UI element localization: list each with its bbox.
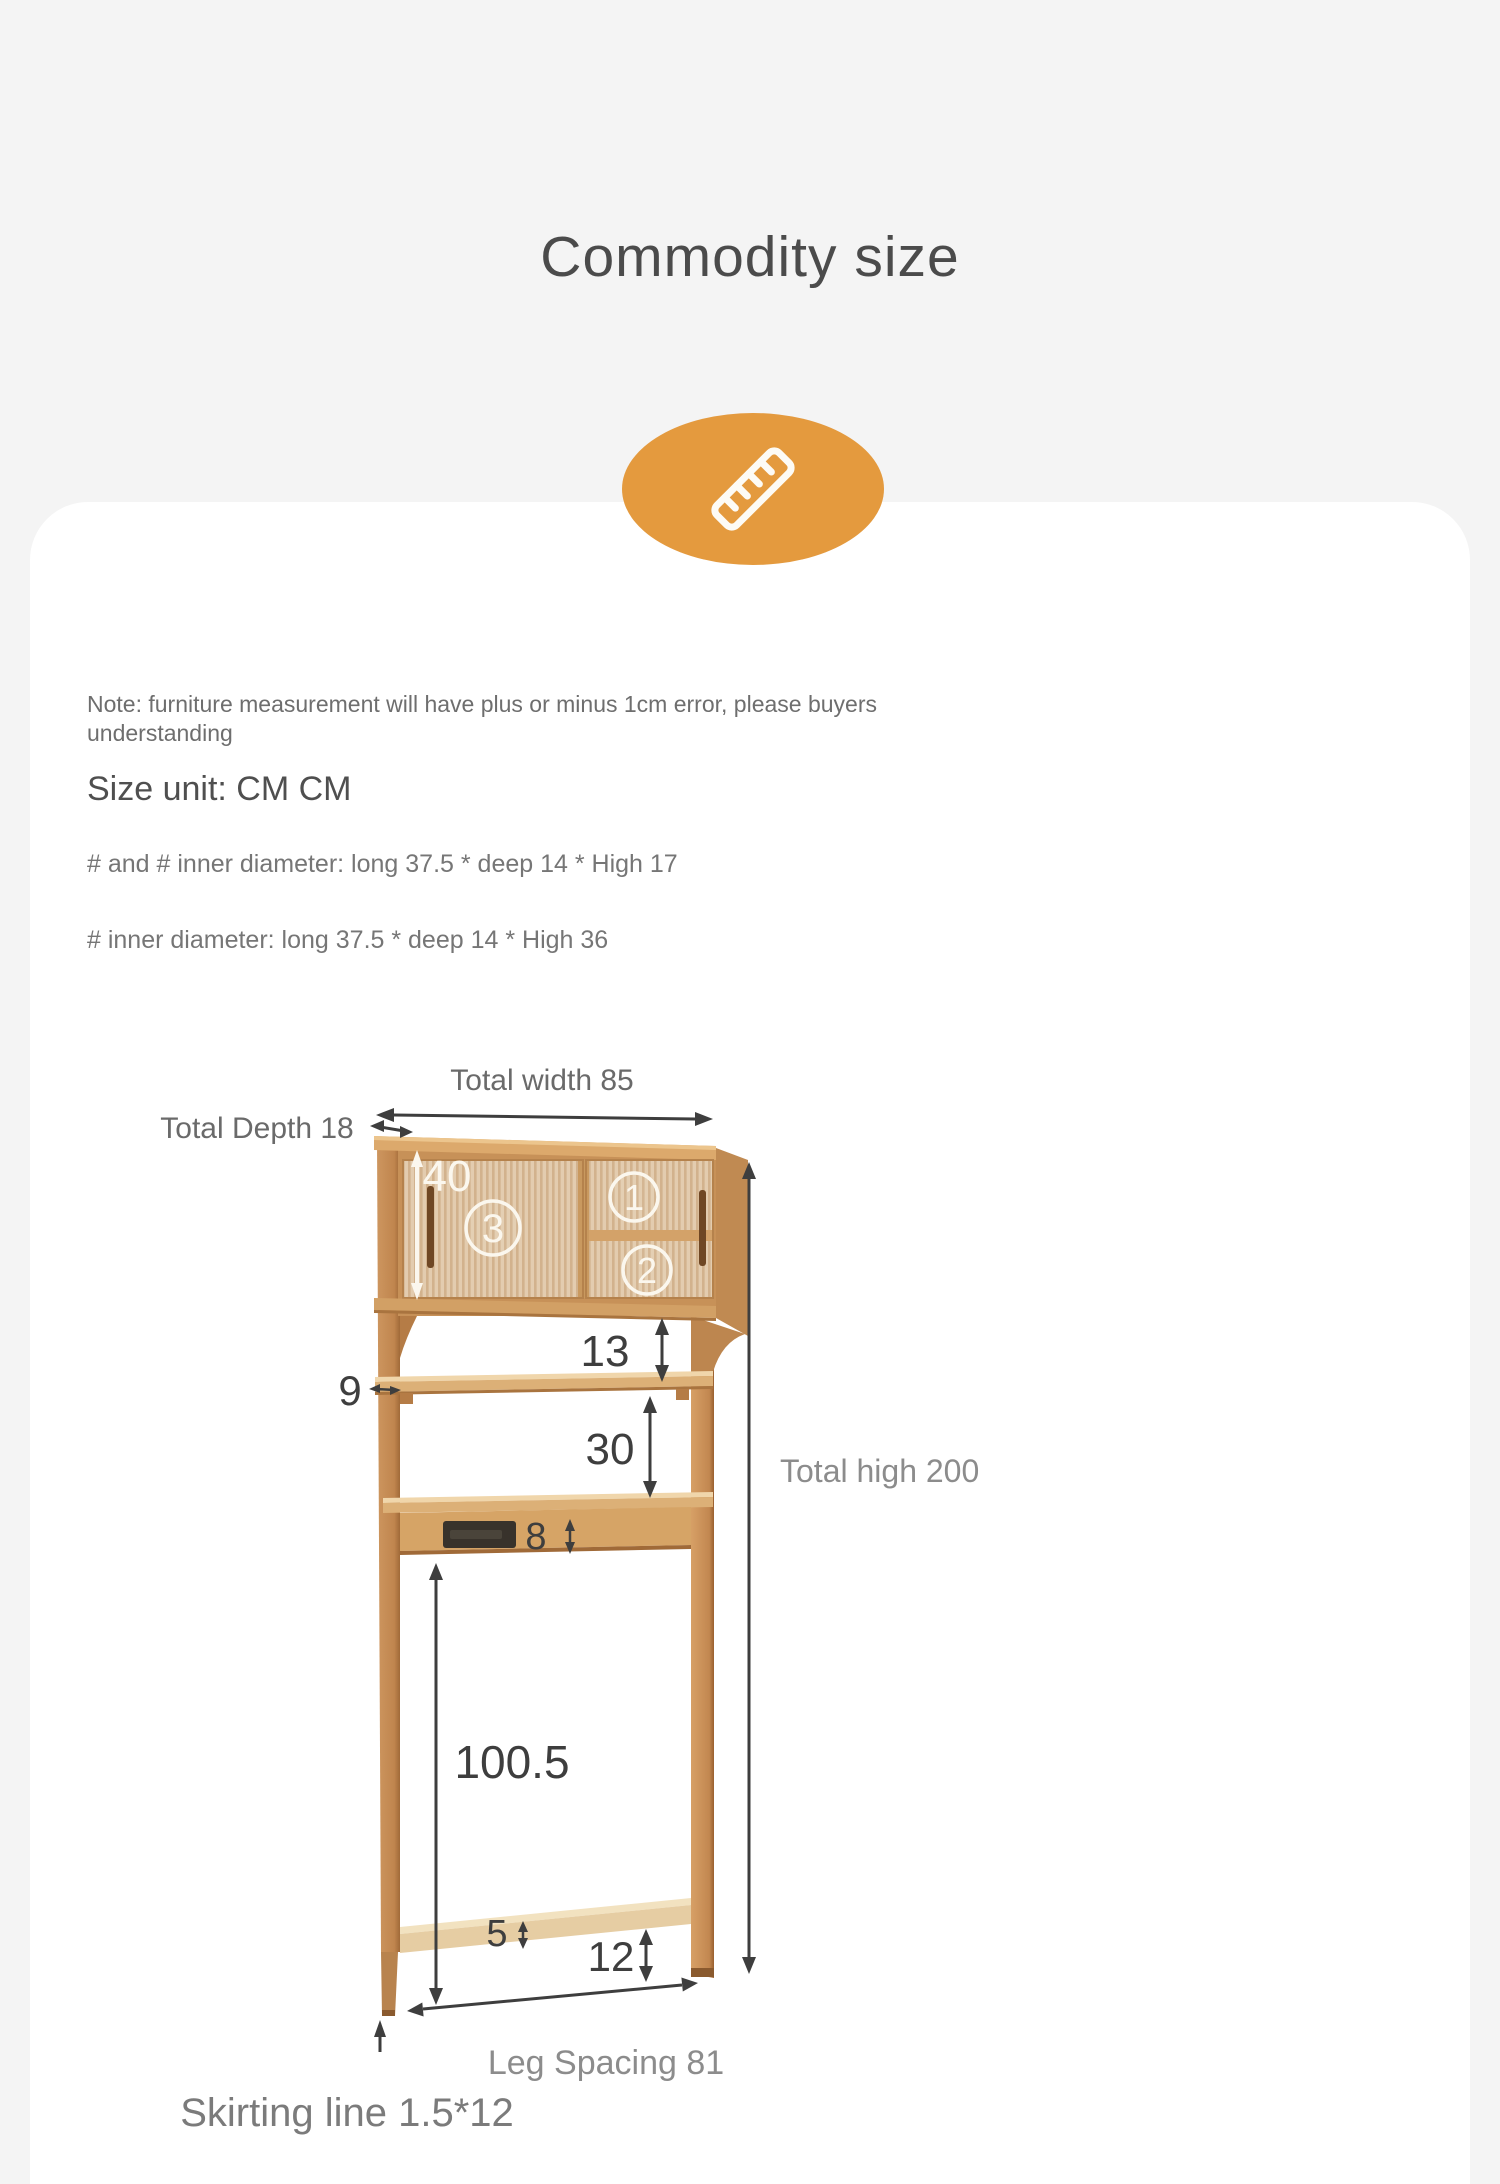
dim-8: 8 [525,1516,546,1558]
left-foot-edge [382,2010,395,2016]
brand-plaque-emboss [450,1530,502,1539]
dim-5: 5 [486,1913,507,1955]
cabinet-left-bracket [400,1316,417,1358]
compartment-1-number: 1 [624,1177,644,1218]
compartment-2-number: 2 [637,1250,657,1291]
compartment-2-marker: 2 [623,1246,671,1294]
dim-13: 13 [581,1327,630,1376]
dim-9: 9 [338,1367,361,1414]
left-foot [381,1952,398,2016]
dim-100-5: 100.5 [454,1736,569,1788]
dim-cabinet-height: 40 [423,1152,472,1201]
total-width-arrow [376,1108,713,1126]
skirting-pointer-arrow [374,2020,386,2052]
dimension-diagram: 40 1 2 3 [0,0,1500,2184]
total-depth-arrow [370,1120,413,1138]
leg-spacing-arrow [407,1978,698,2017]
label-total-depth: Total Depth 18 [160,1112,353,1145]
compartment-3-number: 3 [482,1207,504,1251]
furniture-rack [374,1136,748,2016]
label-skirting-line: Skirting line 1.5*12 [180,2091,514,2135]
compartment-1-marker: 1 [610,1173,658,1221]
dim-30: 30 [586,1425,635,1474]
label-total-width: Total width 85 [450,1064,633,1097]
shelf-1-right-bracket [676,1389,689,1400]
right-leg-foot-edge [691,1968,714,1977]
left-post [377,1140,400,1952]
shelf-1-left-bracket [400,1393,413,1404]
label-total-high: Total high 200 [780,1453,979,1489]
compartment-3-marker: 3 [466,1201,520,1255]
right-leg [691,1330,714,1978]
right-door-handle [699,1190,706,1266]
dim-12: 12 [588,1933,635,1980]
cabinet-mid-shelf [589,1230,713,1241]
foot-12-arrow [639,1929,653,1982]
gap-30-arrow [643,1396,657,1498]
label-leg-spacing: Leg Spacing 81 [488,2044,724,2082]
